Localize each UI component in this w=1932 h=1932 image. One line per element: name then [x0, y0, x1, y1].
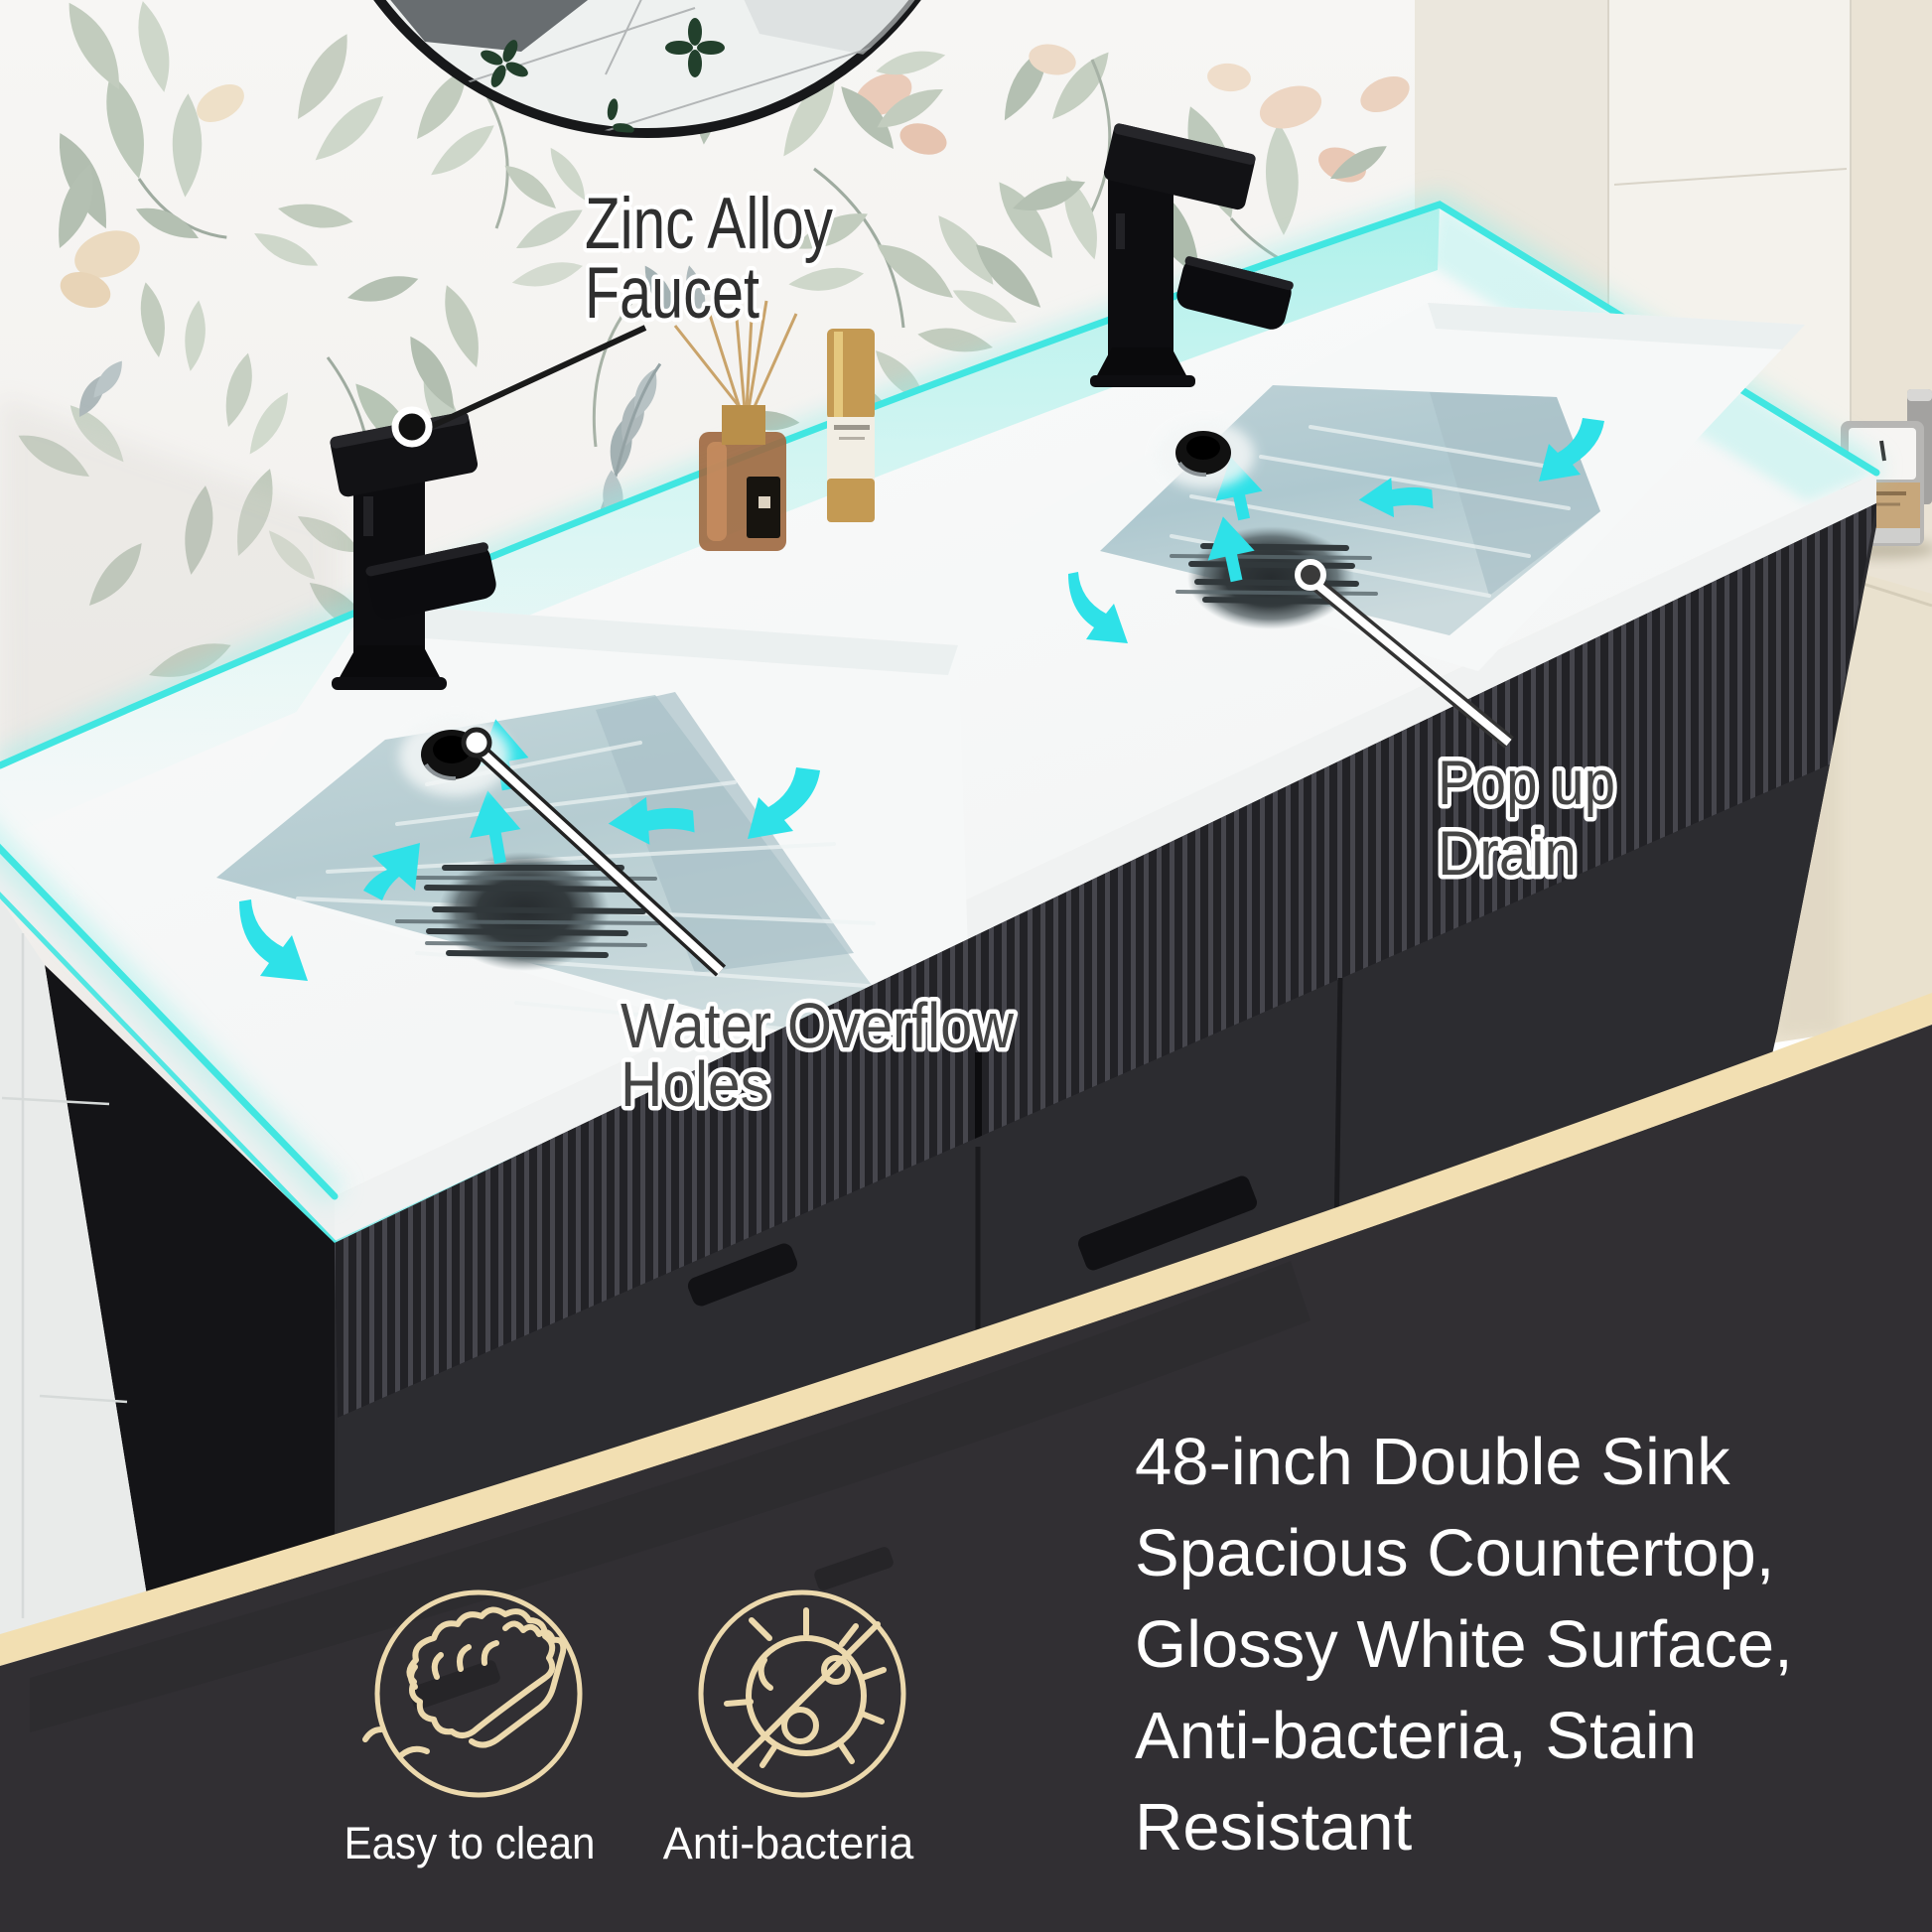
svg-text:Easy to clean: Easy to clean: [345, 1818, 596, 1868]
svg-text:48-inch Double Sink: 48-inch Double Sink: [1135, 1425, 1730, 1499]
svg-text:Resistant: Resistant: [1135, 1790, 1413, 1864]
svg-text:Anti-bacteria, Stain: Anti-bacteria, Stain: [1135, 1699, 1697, 1773]
svg-text:Faucet: Faucet: [585, 253, 759, 334]
svg-text:Glossy White Surface,: Glossy White Surface,: [1135, 1607, 1793, 1682]
svg-text:Holes: Holes: [621, 1048, 769, 1120]
svg-text:Spacious Countertop,: Spacious Countertop,: [1135, 1516, 1774, 1590]
svg-text:Pop up: Pop up: [1438, 749, 1615, 818]
svg-text:Zinc Alloy: Zinc Alloy: [585, 184, 833, 264]
svg-text:Anti-bacteria: Anti-bacteria: [663, 1818, 915, 1868]
svg-text:Drain: Drain: [1438, 819, 1577, 889]
